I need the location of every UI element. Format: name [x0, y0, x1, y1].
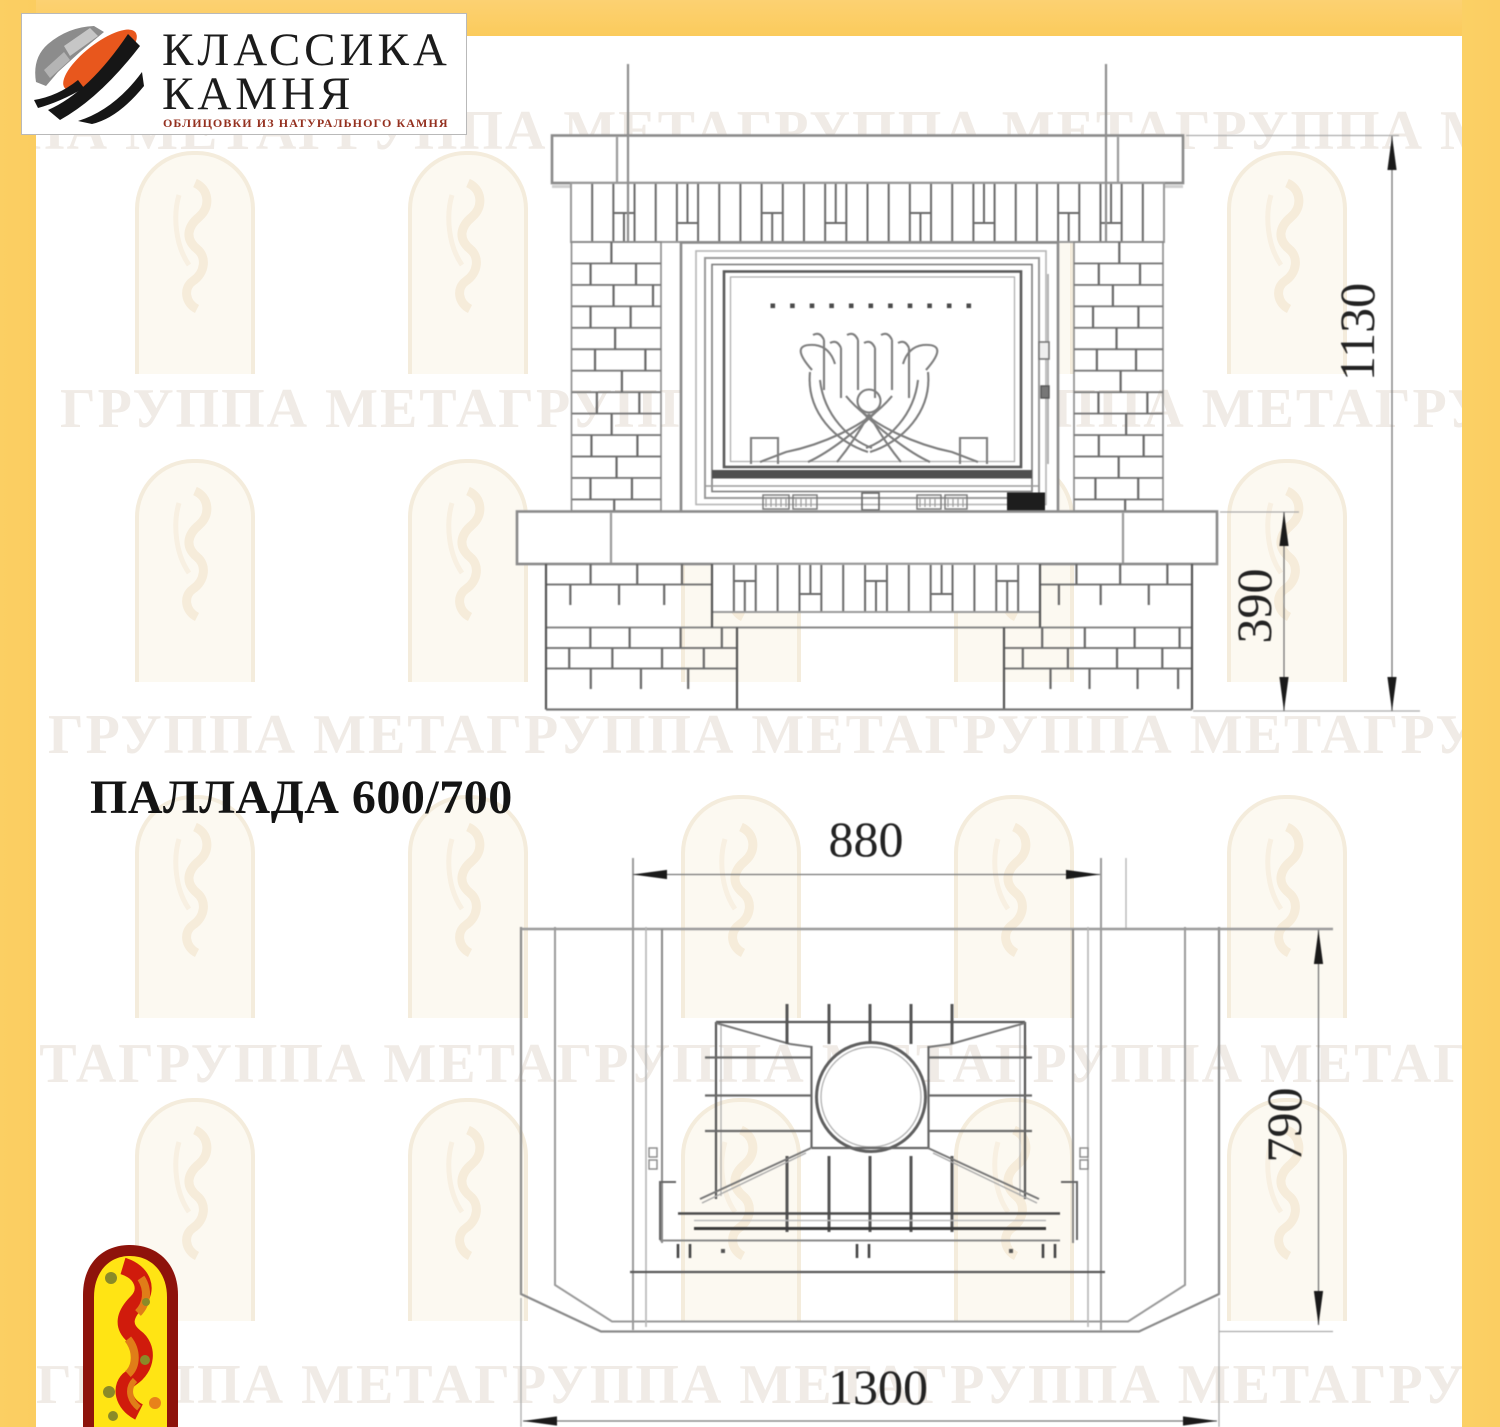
svg-text:1300: 1300 — [828, 1359, 928, 1415]
svg-text:1130: 1130 — [1329, 283, 1385, 381]
svg-text:880: 880 — [829, 811, 904, 867]
svg-text:790: 790 — [1256, 1088, 1312, 1163]
svg-text:390: 390 — [1226, 569, 1282, 644]
